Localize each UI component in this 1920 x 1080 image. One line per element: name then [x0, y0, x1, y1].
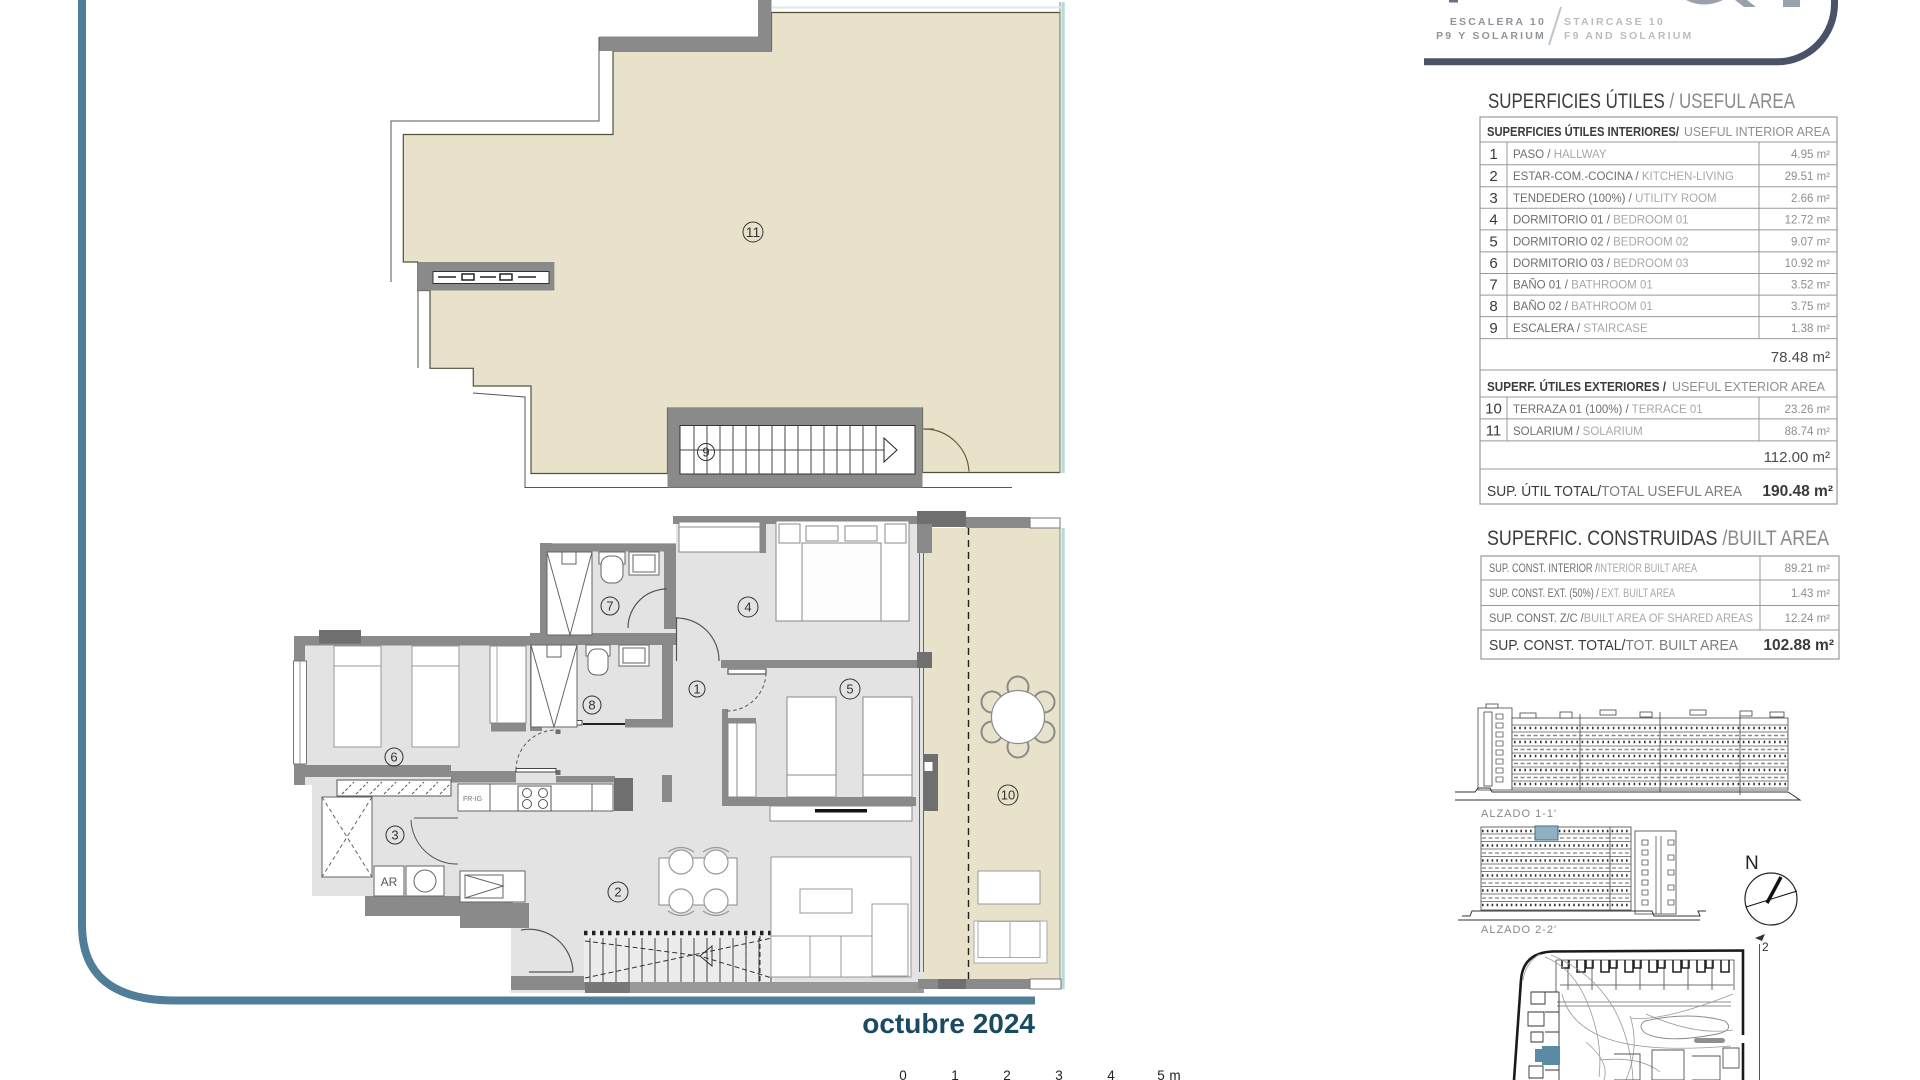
- svg-text:23.26 m²: 23.26 m²: [1785, 404, 1831, 416]
- svg-text:ESCALERA / STAIRCASE: ESCALERA / STAIRCASE: [1513, 323, 1648, 335]
- svg-text:190.48 m²: 190.48 m²: [1762, 483, 1833, 500]
- svg-text:8: 8: [1489, 298, 1497, 315]
- svg-text:4: 4: [1107, 1068, 1115, 1080]
- svg-text:29.51 m²: 29.51 m²: [1785, 171, 1831, 183]
- svg-text:5: 5: [1489, 234, 1497, 251]
- svg-text:BAÑO 02 / BATHROOM 01: BAÑO 02 / BATHROOM 01: [1513, 300, 1653, 313]
- svg-text:F9 AND SOLARIUM: F9 AND SOLARIUM: [1564, 30, 1693, 42]
- svg-text:89.21 m²: 89.21 m²: [1785, 563, 1831, 575]
- svg-text:10.92 m²: 10.92 m²: [1785, 258, 1831, 270]
- svg-text:6: 6: [390, 750, 397, 765]
- svg-text:4.95 m²: 4.95 m²: [1791, 149, 1830, 161]
- svg-text:ESTAR-COM.-COCINA / KITCHEN-LI: ESTAR-COM.-COCINA / KITCHEN-LIVING: [1513, 171, 1734, 183]
- svg-text:SUPERFICIES ÚTILES / USEFUL AR: SUPERFICIES ÚTILES / USEFUL AREA: [1488, 90, 1795, 113]
- svg-text:FR-IG: FR-IG: [463, 796, 482, 803]
- svg-text:1.38 m²: 1.38 m²: [1791, 323, 1830, 335]
- svg-text:SUPERF. ÚTILES EXTERIORES /: SUPERF. ÚTILES EXTERIORES /: [1487, 379, 1666, 394]
- svg-text:1: 1: [1489, 146, 1497, 163]
- svg-text:6: 6: [1489, 255, 1497, 272]
- svg-text:SUP. CONST. TOTAL/TOT. BUILT A: SUP. CONST. TOTAL/TOT. BUILT AREA: [1489, 637, 1738, 654]
- svg-text:1.43 m²: 1.43 m²: [1791, 588, 1830, 600]
- svg-text:BAÑO 01 / BATHROOM 01: BAÑO 01 / BATHROOM 01: [1513, 279, 1653, 292]
- svg-text:7: 7: [1489, 277, 1497, 294]
- svg-text:PASO / HALLWAY: PASO / HALLWAY: [1513, 149, 1607, 161]
- svg-text:3.75 m²: 3.75 m²: [1791, 301, 1830, 313]
- svg-text:ALZADO 1-1': ALZADO 1-1': [1481, 808, 1557, 820]
- svg-text:12.72 m²: 12.72 m²: [1785, 215, 1831, 227]
- svg-text:P9 Y SOLARIUM: P9 Y SOLARIUM: [1436, 30, 1546, 42]
- svg-text:0: 0: [899, 1068, 907, 1080]
- svg-text:78.48 m²: 78.48 m²: [1771, 349, 1830, 366]
- svg-text:2: 2: [614, 885, 621, 900]
- svg-text:9.07 m²: 9.07 m²: [1791, 237, 1830, 249]
- svg-text:m: m: [1169, 1068, 1180, 1080]
- svg-text:11: 11: [1486, 423, 1502, 440]
- svg-text:SUP. ÚTIL TOTAL/TOTAL USEFUL A: SUP. ÚTIL TOTAL/TOTAL USEFUL AREA: [1487, 483, 1742, 500]
- svg-text:4: 4: [1489, 212, 1497, 229]
- svg-text:88.74 m²: 88.74 m²: [1785, 426, 1831, 438]
- svg-text:TENDEDERO (100%) / UTILITY ROO: TENDEDERO (100%) / UTILITY ROOM: [1513, 193, 1717, 205]
- svg-text:DORMITORIO 01 / BEDROOM 01: DORMITORIO 01 / BEDROOM 01: [1513, 215, 1689, 227]
- svg-text:ESCALERA 10: ESCALERA 10: [1450, 16, 1546, 28]
- svg-text:112.00 m²: 112.00 m²: [1764, 449, 1830, 466]
- svg-text:SUPERFICIES ÚTILES INTERIORES/: SUPERFICIES ÚTILES INTERIORES/: [1487, 124, 1679, 139]
- svg-text:SUP. CONST. Z/C /BUILT AREA OF: SUP. CONST. Z/C /BUILT AREA OF SHARED AR…: [1489, 613, 1753, 625]
- svg-text:8: 8: [588, 698, 595, 713]
- svg-text:9: 9: [702, 445, 709, 460]
- svg-text:ALZADO 2-2': ALZADO 2-2': [1481, 924, 1557, 936]
- svg-text:102.88 m²: 102.88 m²: [1763, 637, 1834, 654]
- svg-text:10: 10: [1001, 788, 1015, 803]
- svg-text:10: 10: [1485, 401, 1502, 418]
- svg-text:USEFUL EXTERIOR AREA: USEFUL EXTERIOR AREA: [1672, 379, 1825, 394]
- svg-text:octubre 2024: octubre 2024: [862, 1008, 1035, 1039]
- svg-text:4: 4: [744, 600, 751, 615]
- svg-text:2: 2: [1762, 940, 1769, 954]
- svg-text:2: 2: [1489, 168, 1497, 185]
- svg-text:SUP. CONST. INTERIOR /INTERIOR: SUP. CONST. INTERIOR /INTERIOR BUILT ARE…: [1489, 563, 1697, 575]
- svg-text:7: 7: [606, 599, 613, 614]
- svg-text:2: 2: [1003, 1068, 1011, 1080]
- svg-text:AR: AR: [381, 875, 398, 889]
- svg-text:N: N: [1745, 853, 1759, 874]
- svg-text:SOLARIUM / SOLARIUM: SOLARIUM / SOLARIUM: [1513, 426, 1643, 438]
- svg-text:12.24 m²: 12.24 m²: [1785, 613, 1831, 625]
- svg-text:5: 5: [846, 682, 853, 697]
- svg-text:TERRAZA 01 (100%) / TERRACE 01: TERRAZA 01 (100%) / TERRACE 01: [1513, 404, 1703, 416]
- svg-text:3: 3: [1055, 1068, 1063, 1080]
- svg-text:11: 11: [746, 224, 761, 240]
- svg-text:DORMITORIO 02 / BEDROOM 02: DORMITORIO 02 / BEDROOM 02: [1513, 237, 1689, 249]
- svg-text:SUPERFIC. CONSTRUIDAS /BUILT A: SUPERFIC. CONSTRUIDAS /BUILT AREA: [1487, 527, 1829, 550]
- svg-text:5: 5: [1157, 1068, 1165, 1080]
- svg-text:SUP. CONST. EXT. (50%) / EXT.: SUP. CONST. EXT. (50%) / EXT. BUILT AREA: [1489, 588, 1675, 600]
- svg-text:1: 1: [951, 1068, 959, 1080]
- svg-text:3: 3: [391, 828, 398, 843]
- svg-text:2.66 m²: 2.66 m²: [1791, 193, 1830, 205]
- svg-text:STAIRCASE 10: STAIRCASE 10: [1564, 16, 1665, 28]
- svg-text:1: 1: [693, 682, 700, 697]
- svg-text:9: 9: [1489, 320, 1497, 337]
- svg-text:USEFUL INTERIOR AREA: USEFUL INTERIOR AREA: [1684, 124, 1830, 139]
- svg-text:3.52 m²: 3.52 m²: [1791, 280, 1830, 292]
- svg-text:3: 3: [1489, 190, 1497, 207]
- svg-text:DORMITORIO 03 / BEDROOM 03: DORMITORIO 03 / BEDROOM 03: [1513, 258, 1689, 270]
